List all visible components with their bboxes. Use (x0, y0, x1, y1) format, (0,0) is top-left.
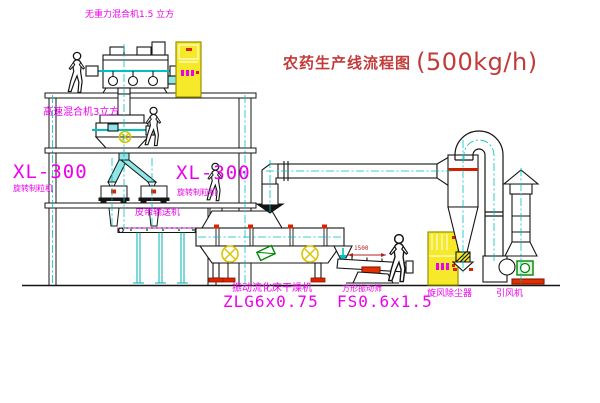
control-cabinet-sieve (428, 232, 458, 285)
label-belt-conveyor: 皮带输送机 (135, 209, 180, 218)
label-sieve-dimension: 1500 (354, 246, 368, 252)
y-chute (108, 153, 156, 182)
label-granulator-left-model: XL-300 (13, 163, 88, 182)
granulator-right-drawing (139, 182, 169, 203)
page-title: 农药生产线流程图 (500kg/h) (283, 50, 538, 74)
person-figure (389, 235, 408, 282)
label-sieve-model: FS0.6x1.5 (337, 294, 433, 310)
label-granulator-right-model: XL-300 (176, 164, 251, 183)
high-speed-mixer-drawing (92, 115, 154, 148)
label-high-speed-mixer: 高速混合机3立方 (43, 108, 119, 118)
person-figure (68, 52, 84, 92)
title-text: 农药生产线流程图 (283, 54, 411, 72)
gravity-mixer-drawing (86, 42, 182, 94)
fan-stack-drawing (483, 170, 544, 284)
label-cyclone: 旋风除尘器 (427, 290, 472, 299)
label-fan: 引风机 (496, 290, 523, 299)
control-cabinet-top (176, 42, 201, 97)
diagram-canvas: 农药生产线流程图 (500kg/h) 无重力混合机1.5 立方 高速混合机3立方… (0, 0, 600, 403)
label-dryer-model: ZLG6x0.75 (223, 294, 319, 310)
granulator-left-drawing (99, 182, 129, 203)
label-gravity-mixer: 无重力混合机1.5 立方 (85, 11, 174, 20)
label-granulator-right-name: 旋转制粒机 (177, 189, 217, 197)
label-granulator-left-name: 旋转制粒机 (13, 185, 53, 193)
title-capacity: (500kg/h) (416, 48, 537, 76)
